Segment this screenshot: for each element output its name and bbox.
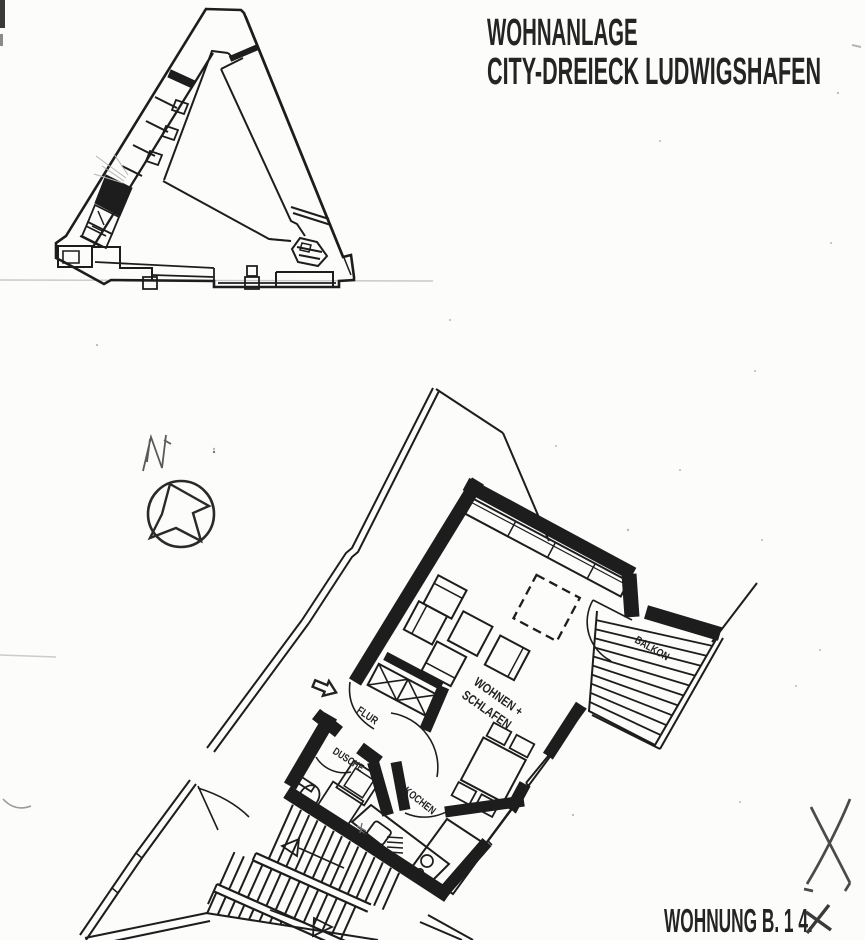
svg-text:CITY-DREIECK LUDWIGSHAFEN: CITY-DREIECK LUDWIGSHAFEN xyxy=(487,50,821,93)
svg-text:WOHNANLAGE: WOHNANLAGE xyxy=(487,11,638,53)
svg-text:WOHNUNG B. 1 4.: WOHNUNG B. 1 4. xyxy=(664,902,813,940)
